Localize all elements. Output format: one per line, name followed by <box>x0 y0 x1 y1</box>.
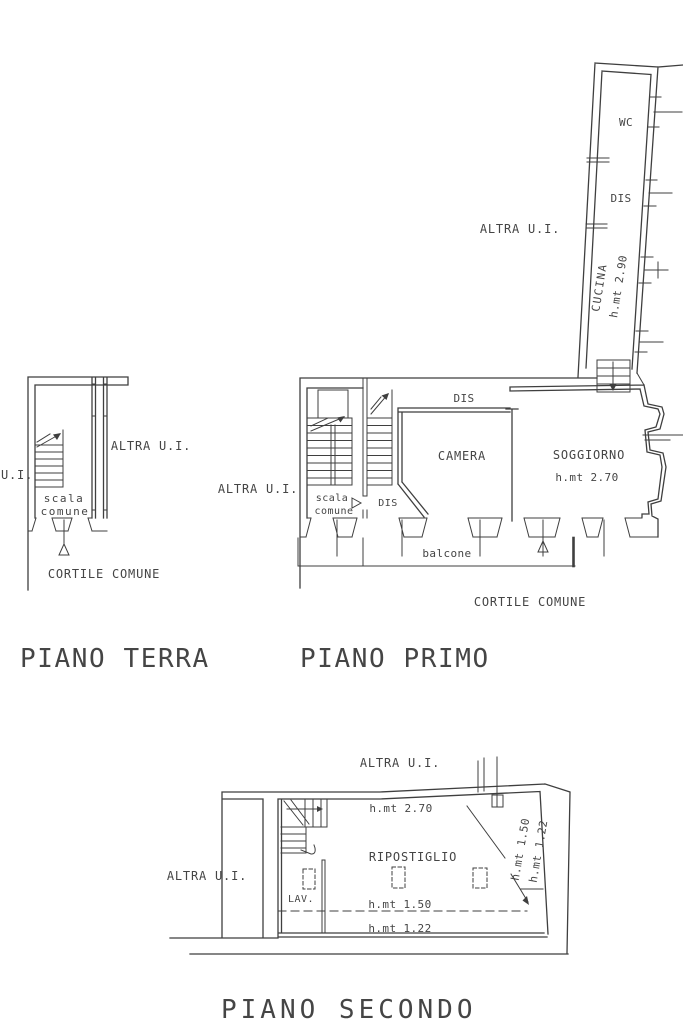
primo-label-cucina: CUCINA <box>589 262 609 312</box>
secondo-skylight-3 <box>473 868 487 888</box>
primo-label-altra-ui-left: ALTRA U.I. <box>218 482 298 496</box>
primo-label-soggiorno-height: h.mt 2.70 <box>555 471 618 484</box>
primo-label-soggiorno: SOGGIORNO <box>553 448 625 462</box>
terra-stair-arrowhead <box>53 433 61 440</box>
secondo-label-altra-ui-top: ALTRA U.I. <box>360 756 440 770</box>
secondo-label-lav: LAV. <box>288 894 314 905</box>
terra-label-scala: scala <box>44 492 85 505</box>
plan-piano-terra: ALTRA U.I. U.I. scala comune CORTILE COM… <box>1 377 210 674</box>
secondo-label-altra-ui-left: ALTRA U.I. <box>167 869 247 883</box>
secondo-label-ripostiglio: RIPOSTIGLIO <box>369 850 457 864</box>
secondo-partition-wall <box>322 860 325 933</box>
plan-piano-secondo: ALTRA U.I. ALTRA U.I. h.mt 2.70 RIPOSTIG… <box>167 756 570 1024</box>
terra-entrance-wall <box>28 518 107 543</box>
primo-wing-walls <box>578 63 683 377</box>
terra-label-comune: comune <box>41 505 90 518</box>
primo-label-dis-mid: DIS <box>378 498 398 509</box>
terra-label-altra-ui: ALTRA U.I. <box>111 439 191 453</box>
primo-left-stair <box>307 390 352 485</box>
primo-stair-divider-wall <box>363 378 367 518</box>
secondo-slope-arrowhead <box>523 896 530 905</box>
terra-label-ui-partial: U.I. <box>1 468 33 482</box>
primo-label-balcone: balcone <box>422 547 471 560</box>
secondo-label-height-270: h.mt 2.70 <box>369 802 432 815</box>
terra-entrance-triangle-marker <box>59 544 69 555</box>
secondo-label-height-150: h.mt 1.50 <box>368 898 431 911</box>
primo-label-camera: CAMERA <box>438 449 486 463</box>
secondo-label-height-122: h.mt 1.22 <box>368 922 431 935</box>
primo-mid-stair <box>367 390 392 485</box>
secondo-chimney <box>478 757 503 807</box>
terra-wall-ticks <box>92 384 107 510</box>
primo-label-cortile-comune: CORTILE COMUNE <box>474 595 586 609</box>
primo-label-wc: WC <box>619 116 633 129</box>
terra-label-cortile-comune: CORTILE COMUNE <box>48 567 160 581</box>
secondo-stairs <box>281 799 327 853</box>
primo-label-comune: comune <box>314 506 353 517</box>
primo-bottom-window-wall <box>300 518 658 556</box>
terra-stairs <box>35 430 63 487</box>
primo-mid-stair-arrowhead <box>382 393 390 400</box>
secondo-skylight-2 <box>392 867 405 888</box>
secondo-stair-arrowhead <box>317 806 323 812</box>
floor-plan-drawing: ALTRA U.I. U.I. scala comune CORTILE COM… <box>0 0 683 1024</box>
floor-plan-sheet: ALTRA U.I. U.I. scala comune CORTILE COM… <box>0 0 683 1024</box>
primo-label-dis-wing: DIS <box>610 192 631 205</box>
terra-outer-walls <box>28 377 128 590</box>
secondo-skylight-1 <box>303 869 315 889</box>
primo-label-altra-ui-wing: ALTRA U.I. <box>480 222 560 236</box>
primo-title: PIANO PRIMO <box>300 644 490 674</box>
terra-title: PIANO TERRA <box>20 644 210 674</box>
primo-label-scala: scala <box>316 493 349 504</box>
primo-label-cucina-height: h.mt 2.90 <box>607 254 630 318</box>
plan-piano-primo: WC DIS CUCINA h.mt 2.90 ALTRA U.I. DIS C… <box>218 63 683 674</box>
primo-wing-windows <box>635 97 682 352</box>
primo-label-dis-top: DIS <box>453 392 474 405</box>
secondo-title: PIANO SECONDO <box>221 995 477 1024</box>
